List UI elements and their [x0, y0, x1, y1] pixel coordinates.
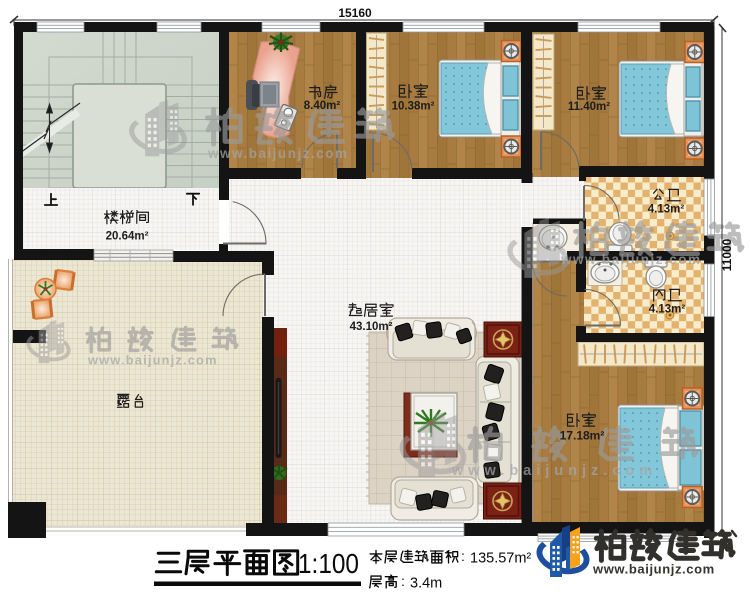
svg-text::: : [461, 548, 465, 564]
svg-text:www.baijunjz.com: www.baijunjz.com [87, 353, 218, 368]
svg-text:4.13m²: 4.13m² [648, 204, 685, 216]
svg-text:11.40m²: 11.40m² [568, 101, 610, 113]
svg-text:43.10m²: 43.10m² [350, 321, 393, 333]
svg-text:www.baijunjz.com: www.baijunjz.com [592, 562, 715, 577]
svg-text:4.13m²: 4.13m² [649, 304, 686, 316]
svg-text:135.57m²: 135.57m² [470, 551, 531, 567]
svg-text:10.38m²: 10.38m² [392, 101, 435, 113]
svg-text:1:100: 1:100 [298, 548, 359, 579]
svg-text:3.4m: 3.4m [410, 576, 442, 592]
svg-text:www.baijunjz.com: www.baijunjz.com [560, 252, 702, 267]
svg-text::: : [401, 573, 405, 589]
svg-text:17.18m²: 17.18m² [560, 429, 605, 443]
svg-text:11000: 11000 [720, 238, 734, 271]
svg-text:20.64m²: 20.64m² [106, 231, 149, 243]
svg-text:www.baijunjz.com: www.baijunjz.com [207, 146, 349, 161]
svg-text:www.baijunjz.com: www.baijunjz.com [451, 463, 657, 479]
svg-text:8.40m²: 8.40m² [304, 100, 341, 112]
svg-text:15160: 15160 [338, 6, 372, 20]
